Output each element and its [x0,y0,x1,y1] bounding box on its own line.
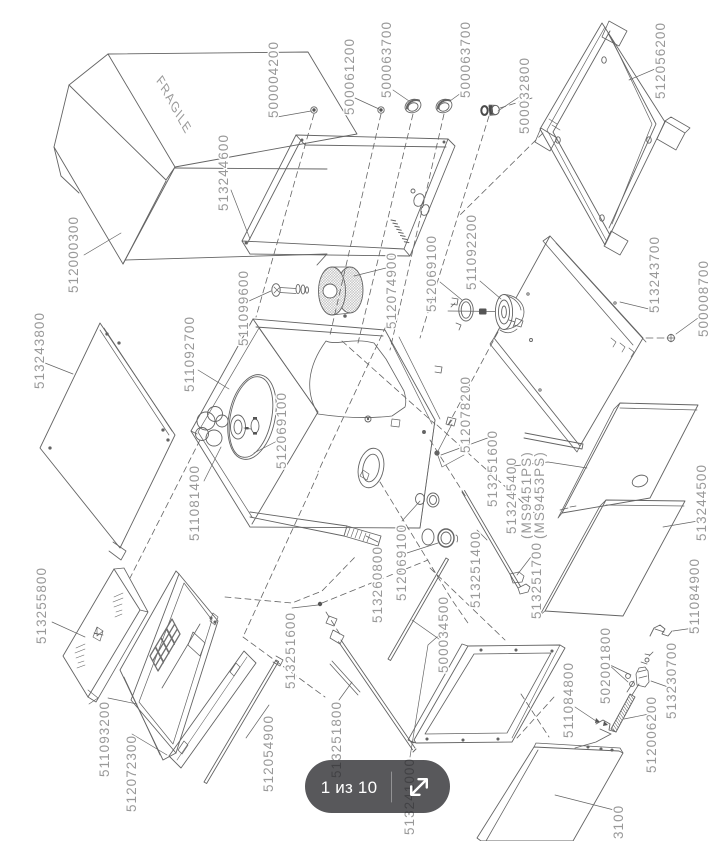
svg-text:513243700: 513243700 [647,236,662,313]
svg-text:511081400: 511081400 [187,465,202,541]
svg-text:500032800: 500032800 [517,57,532,134]
svg-text:513255800: 513255800 [34,567,49,644]
svg-text:511092700: 511092700 [182,316,197,392]
svg-text:511084900: 511084900 [687,558,702,634]
svg-text:512000300: 512000300 [66,216,81,293]
svg-text:500004200: 500004200 [266,41,281,118]
svg-text:511099600: 511099600 [236,270,251,346]
svg-text:(MS9453PS): (MS9453PS) [532,451,547,539]
svg-text:513244600: 513244600 [216,134,231,211]
svg-text:512078200: 512078200 [458,376,473,453]
svg-text:512056200: 512056200 [653,22,668,99]
svg-text:513244500: 513244500 [694,464,709,541]
svg-text:512072300: 512072300 [124,735,139,812]
svg-text:511084800: 511084800 [561,662,576,738]
svg-text:512069100: 512069100 [424,235,439,312]
svg-text:512054900: 512054900 [261,715,276,792]
svg-text:1 из 10: 1 из 10 [321,778,378,797]
svg-text:513251700: 513251700 [529,542,544,619]
svg-text:3100: 3100 [611,805,626,839]
svg-text:512069100: 512069100 [394,524,409,601]
svg-text:500063700: 500063700 [379,21,394,98]
svg-text:502001800: 502001800 [598,627,613,704]
svg-text:500063700: 500063700 [458,21,473,98]
svg-text:511092200: 511092200 [464,214,479,290]
svg-text:513251600: 513251600 [485,430,500,507]
svg-text:513251400: 513251400 [468,531,483,608]
svg-text:513260800: 513260800 [370,546,385,623]
svg-text:FRAGILE: FRAGILE [154,72,194,138]
svg-text:500061200: 500061200 [342,38,357,115]
svg-text:500008700: 500008700 [696,260,711,337]
svg-text:511093200: 511093200 [97,701,112,777]
svg-text:513243800: 513243800 [32,312,47,389]
svg-text:513251600: 513251600 [283,612,298,689]
svg-text:513245400: 513245400 [504,457,519,534]
svg-text:512006200: 512006200 [644,696,659,773]
svg-text:512074900: 512074900 [384,252,399,329]
svg-text:513230700: 513230700 [664,642,679,719]
svg-text:512069100: 512069100 [274,392,289,469]
svg-text:500034500: 500034500 [436,596,451,673]
